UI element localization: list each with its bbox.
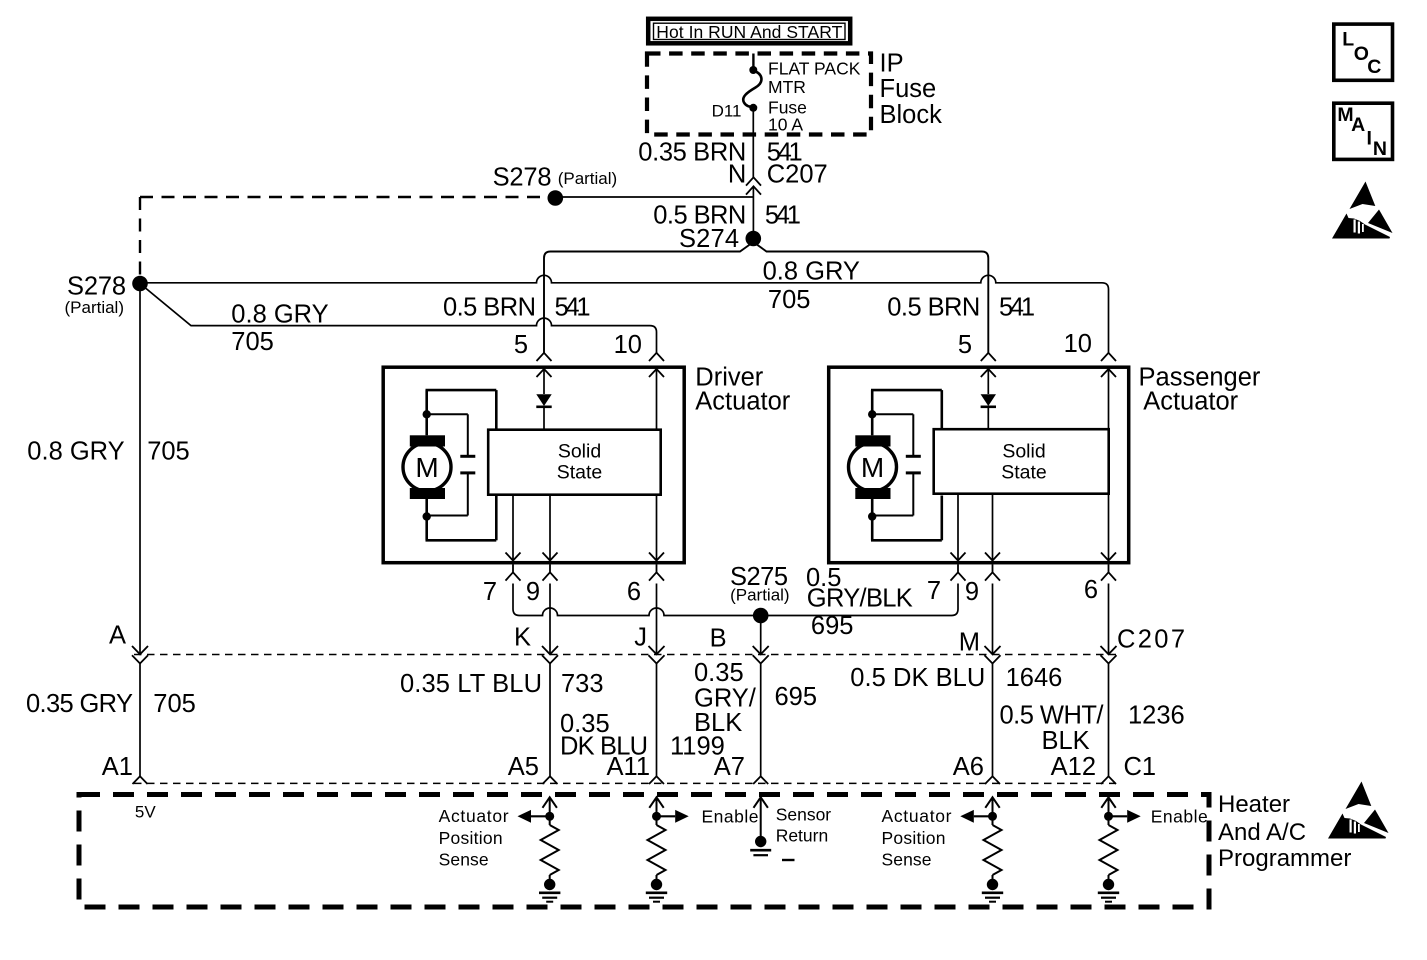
svg-text:Programmer: Programmer [1218, 845, 1351, 872]
svg-text:5: 5 [958, 331, 972, 359]
svg-text:Position: Position [882, 828, 946, 848]
svg-text:J: J [634, 624, 647, 652]
svg-text:1236: 1236 [1128, 702, 1185, 730]
svg-text:Position: Position [439, 828, 503, 848]
svg-text:Heater: Heater [1218, 791, 1290, 818]
svg-text:State: State [557, 462, 603, 484]
svg-text:Fuse: Fuse [880, 75, 937, 103]
svg-text:(Partial): (Partial) [558, 169, 618, 188]
svg-text:733: 733 [561, 670, 604, 698]
svg-text:Actuator: Actuator [695, 388, 790, 416]
svg-text:And A/C: And A/C [1218, 819, 1306, 846]
svg-text:S274: S274 [679, 225, 739, 253]
svg-text:0.5 DK BLU: 0.5 DK BLU [850, 664, 985, 692]
svg-text:9: 9 [526, 578, 540, 606]
svg-text:0.5 BRN: 0.5 BRN [887, 294, 980, 322]
svg-text:705: 705 [231, 328, 274, 356]
svg-text:10: 10 [1064, 330, 1092, 358]
svg-text:Actuator: Actuator [439, 806, 509, 826]
svg-text:10: 10 [614, 331, 642, 359]
svg-text:695: 695 [811, 612, 854, 640]
svg-text:K: K [514, 624, 531, 652]
svg-text:7: 7 [927, 577, 941, 605]
svg-text:C: C [1367, 56, 1381, 78]
svg-text:695: 695 [775, 683, 818, 711]
svg-text:Hot In RUN And START: Hot In RUN And START [656, 22, 842, 42]
svg-text:705: 705 [768, 286, 811, 314]
svg-text:I: I [1367, 127, 1372, 149]
svg-text:A11: A11 [607, 753, 650, 781]
svg-text:0.35 GRY: 0.35 GRY [26, 690, 133, 718]
svg-text:(Partial): (Partial) [64, 298, 124, 317]
svg-text:A12: A12 [1051, 753, 1096, 781]
svg-text:Sense: Sense [882, 850, 932, 870]
svg-text:7: 7 [483, 578, 497, 606]
svg-text:N: N [728, 161, 746, 189]
svg-text:D11: D11 [712, 102, 742, 121]
svg-text:Actuator: Actuator [882, 806, 952, 826]
svg-text:A6: A6 [953, 753, 984, 781]
svg-text:10 A: 10 A [768, 115, 803, 135]
svg-text:Solid: Solid [558, 441, 601, 463]
svg-text:A7: A7 [714, 753, 745, 781]
svg-text:0.35 LT BLU: 0.35 LT BLU [400, 670, 542, 698]
svg-text:9: 9 [965, 578, 979, 606]
svg-text:A: A [109, 622, 126, 650]
svg-text:5V: 5V [135, 803, 156, 822]
svg-text:705: 705 [153, 690, 196, 718]
svg-text:541: 541 [765, 202, 801, 230]
svg-text:FLAT PACK: FLAT PACK [768, 59, 861, 79]
svg-text:S278: S278 [67, 273, 126, 301]
svg-text:Sense: Sense [439, 850, 489, 870]
svg-text:BLK: BLK [1041, 727, 1089, 755]
svg-text:6: 6 [1084, 576, 1098, 604]
svg-text:Actuator: Actuator [1143, 388, 1238, 416]
svg-text:0.8 GRY: 0.8 GRY [27, 438, 124, 466]
svg-text:5: 5 [514, 331, 528, 359]
svg-text:IP: IP [880, 50, 904, 78]
svg-text:A5: A5 [508, 753, 539, 781]
svg-text:1646: 1646 [1006, 664, 1063, 692]
svg-text:C207: C207 [767, 161, 828, 189]
svg-text:Solid: Solid [1002, 441, 1045, 463]
svg-text:Return: Return [776, 826, 829, 846]
svg-text:A: A [1351, 114, 1365, 136]
svg-text:L: L [1342, 29, 1354, 51]
svg-text:B: B [710, 625, 727, 653]
svg-text:A1: A1 [102, 753, 133, 781]
svg-text:(Partial): (Partial) [730, 586, 790, 605]
svg-text:BLK: BLK [694, 709, 742, 737]
svg-text:0.8 GRY: 0.8 GRY [763, 258, 860, 286]
svg-text:541: 541 [999, 294, 1035, 322]
svg-text:0.5 BRN: 0.5 BRN [443, 294, 536, 322]
svg-text:541: 541 [555, 294, 591, 322]
svg-text:M: M [959, 629, 980, 657]
svg-text:C1: C1 [1124, 753, 1157, 781]
svg-text:0.35: 0.35 [694, 659, 744, 687]
svg-text:0.8 GRY: 0.8 GRY [231, 301, 328, 329]
svg-text:S278: S278 [493, 164, 552, 192]
svg-text:6: 6 [627, 578, 641, 606]
svg-text:Block: Block [880, 101, 943, 129]
svg-text:Sensor: Sensor [776, 805, 832, 825]
svg-text:GRY/BLK: GRY/BLK [807, 585, 913, 613]
svg-text:0.5 WHT/: 0.5 WHT/ [1000, 702, 1105, 730]
svg-text:Enable: Enable [702, 807, 759, 827]
svg-text:Enable: Enable [1151, 807, 1208, 827]
svg-text:N: N [1373, 138, 1387, 160]
svg-text:State: State [1001, 462, 1047, 484]
svg-text:MTR: MTR [768, 77, 806, 97]
svg-text:705: 705 [147, 438, 190, 466]
svg-text:C207: C207 [1117, 626, 1185, 654]
svg-text:M: M [415, 452, 438, 483]
